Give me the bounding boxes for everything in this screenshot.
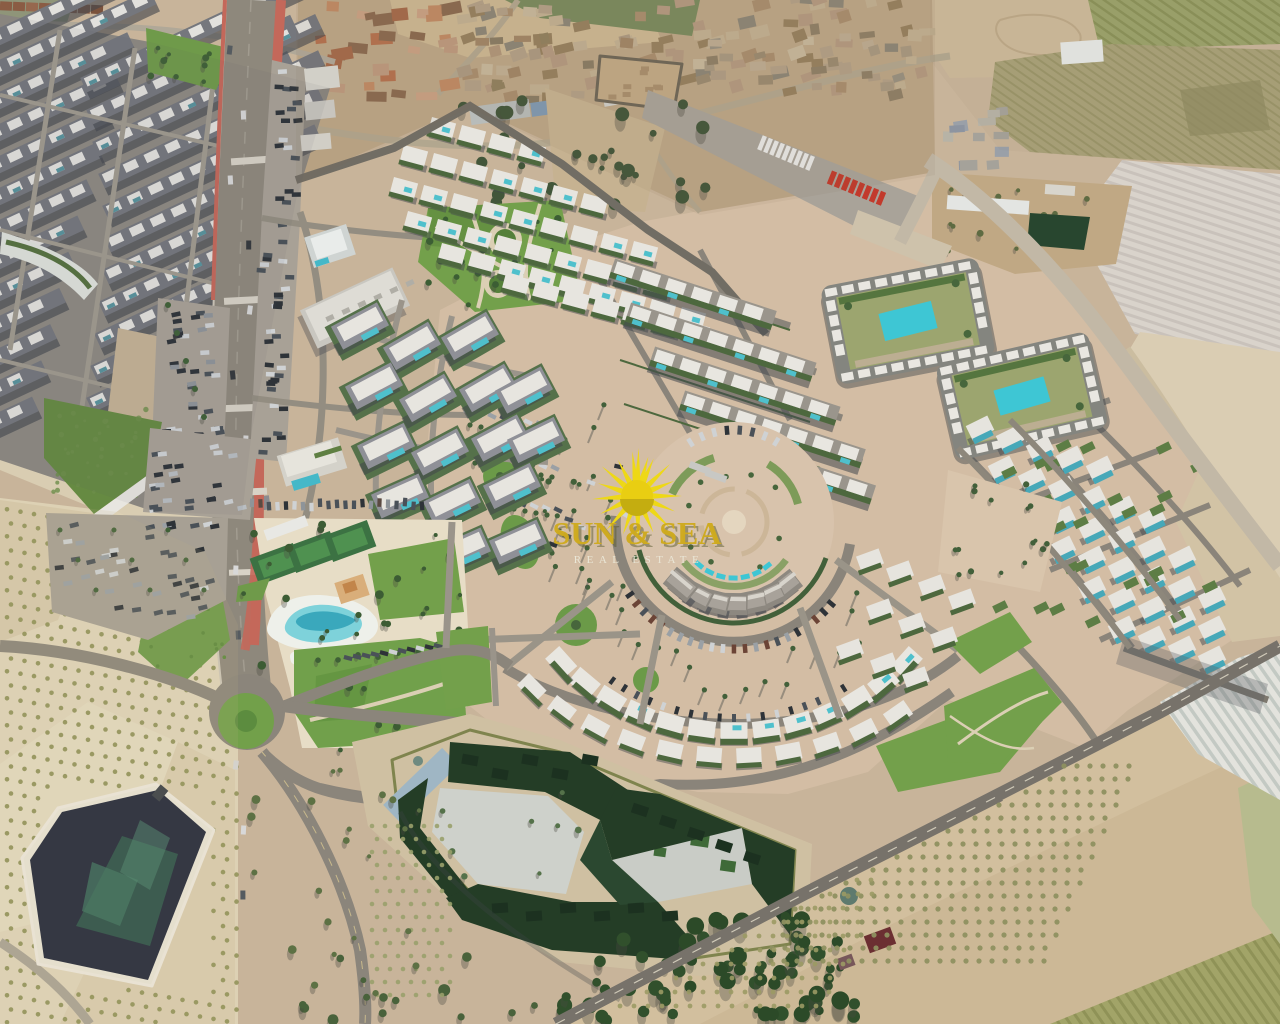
svg-text:SUN & SEA: SUN & SEA (553, 515, 722, 551)
svg-text:REAL ESTATE: REAL ESTATE (574, 554, 704, 566)
